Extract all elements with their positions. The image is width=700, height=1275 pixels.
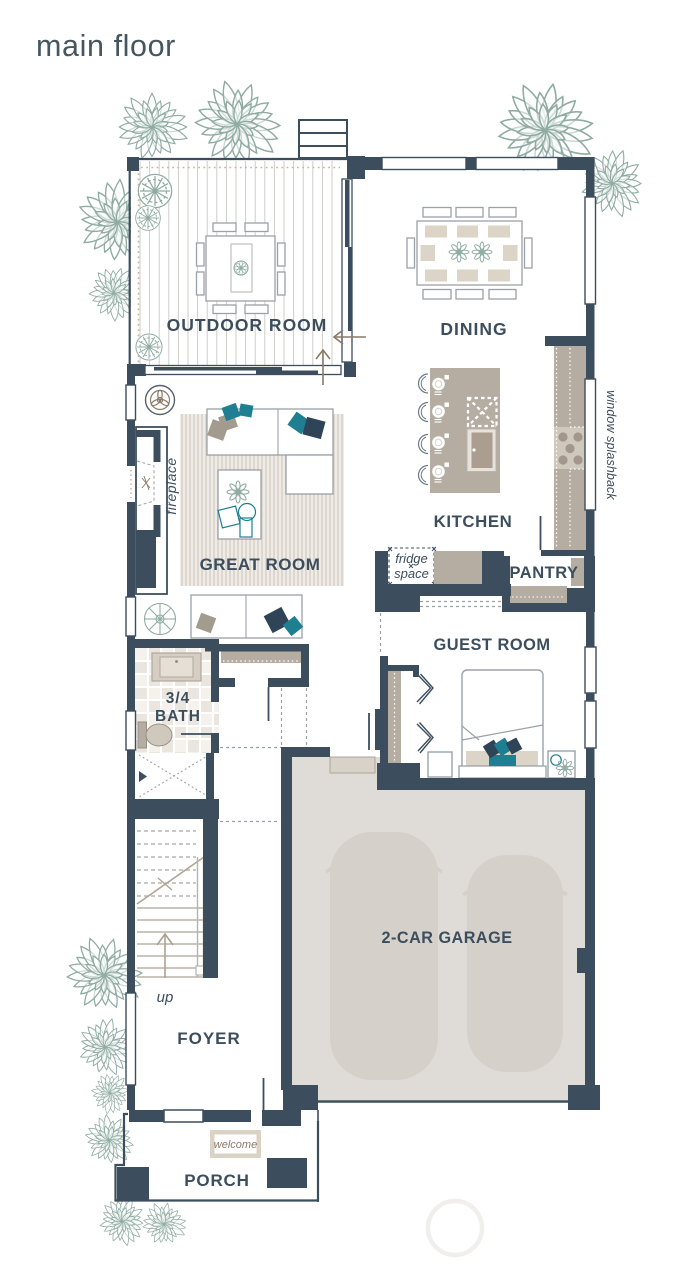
svg-text:KITCHEN: KITCHEN <box>434 512 513 531</box>
svg-text:window splashback: window splashback <box>604 390 618 500</box>
svg-text:BATH: BATH <box>155 708 201 725</box>
svg-text:GREAT ROOM: GREAT ROOM <box>200 555 321 574</box>
svg-text:GUEST ROOM: GUEST ROOM <box>433 636 550 654</box>
svg-text:up: up <box>157 989 174 1006</box>
svg-text:PORCH: PORCH <box>184 1171 249 1190</box>
svg-text:fireplace: fireplace <box>163 457 179 514</box>
svg-text:welcome: welcome <box>214 1139 257 1151</box>
svg-text:PANTRY: PANTRY <box>510 564 579 582</box>
svg-text:space: space <box>394 566 429 581</box>
svg-text:main floor: main floor <box>36 29 176 63</box>
svg-text:DINING: DINING <box>440 319 507 339</box>
svg-text:OUTDOOR ROOM: OUTDOOR ROOM <box>167 315 328 335</box>
svg-text:3/4: 3/4 <box>166 690 191 707</box>
svg-text:FOYER: FOYER <box>177 1029 241 1048</box>
svg-text:fridge: fridge <box>395 551 428 566</box>
svg-text:2-CAR GARAGE: 2-CAR GARAGE <box>381 929 512 947</box>
